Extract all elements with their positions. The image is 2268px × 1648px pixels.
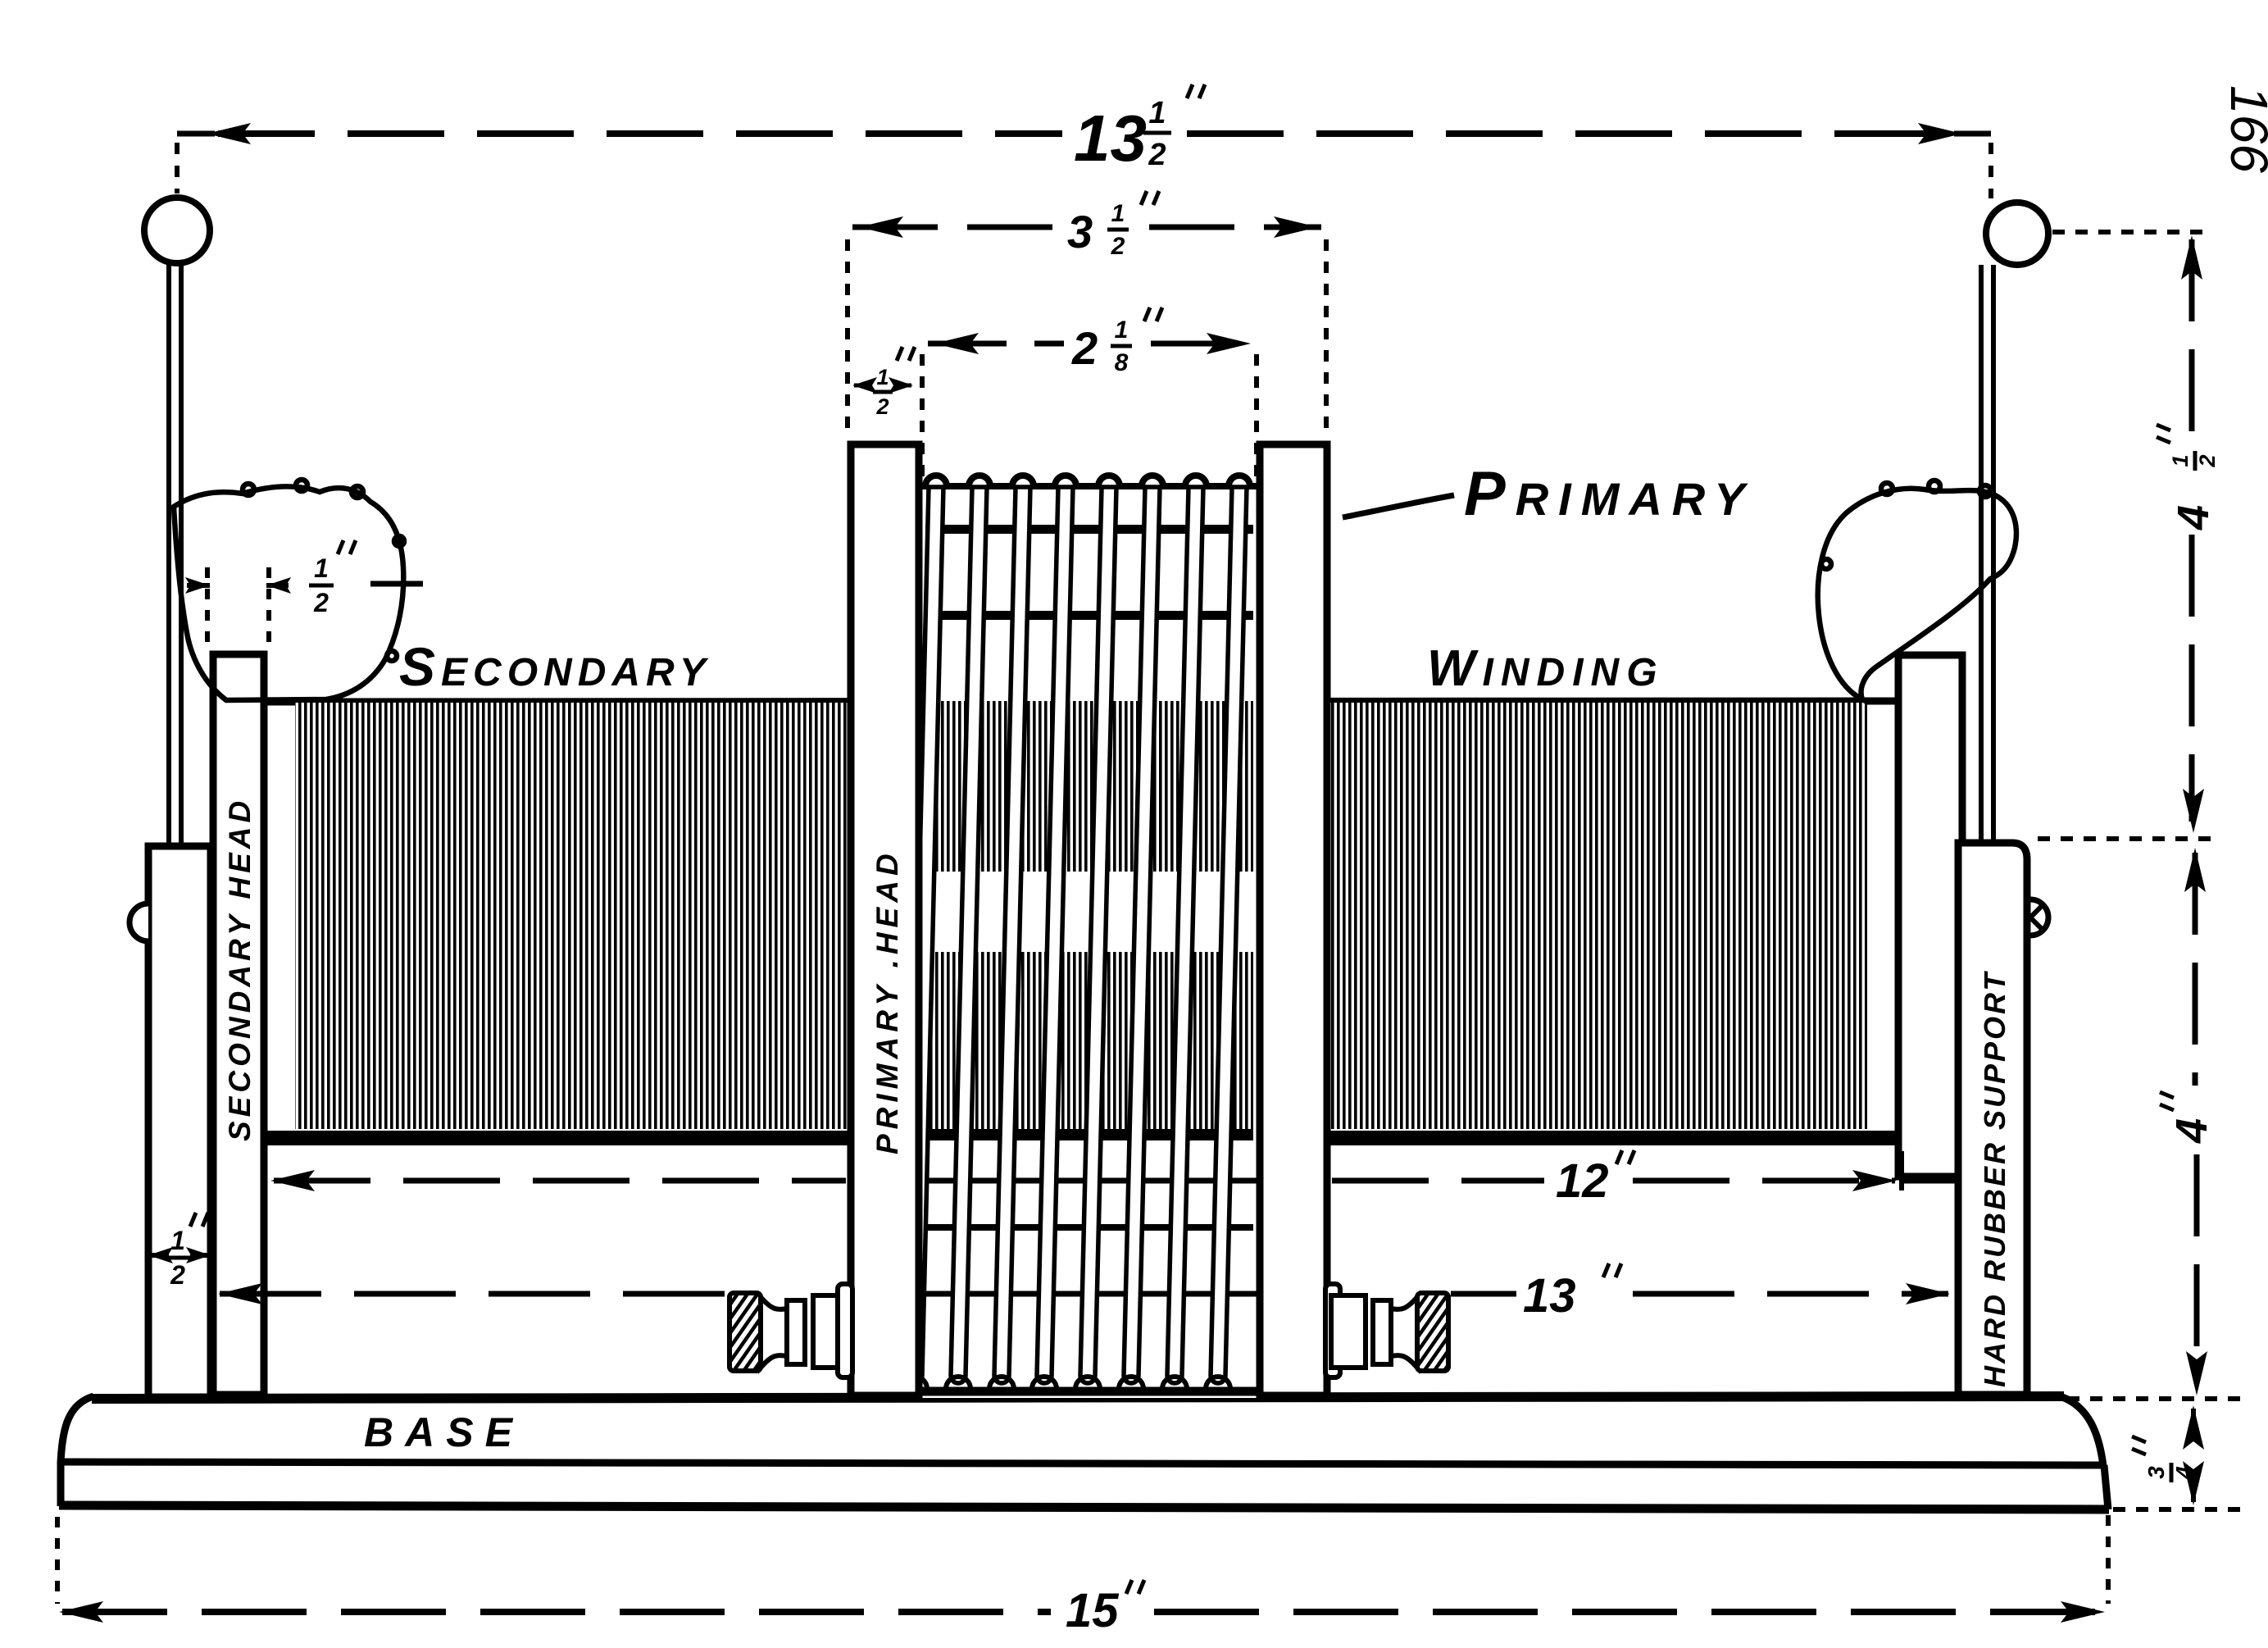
- svg-text:2: 2: [1111, 233, 1125, 260]
- svg-text:3: 3: [2143, 1466, 2169, 1479]
- svg-text:4: 4: [2171, 1466, 2197, 1480]
- svg-text:2: 2: [1071, 322, 1098, 374]
- svg-text:1: 1: [1148, 96, 1166, 130]
- svg-text:2: 2: [875, 394, 889, 419]
- svg-text:12: 12: [1556, 1154, 1609, 1208]
- svg-text:2: 2: [313, 588, 329, 617]
- svg-text:SECONDARY HEAD: SECONDARY HEAD: [223, 797, 257, 1141]
- svg-text:1: 1: [314, 553, 329, 583]
- svg-text:13: 13: [1523, 1269, 1576, 1322]
- svg-text:2: 2: [2195, 454, 2220, 467]
- svg-text:1: 1: [2168, 454, 2193, 467]
- svg-text:4: 4: [2167, 1118, 2216, 1144]
- svg-text:1: 1: [170, 1226, 185, 1255]
- svg-text:BASE: BASE: [364, 1409, 524, 1455]
- svg-text:166: 166: [2220, 85, 2268, 173]
- svg-text:2: 2: [1148, 138, 1166, 172]
- svg-text:1: 1: [876, 365, 889, 389]
- svg-text:1: 1: [1115, 316, 1129, 344]
- svg-text:PRIMARY .HEAD: PRIMARY .HEAD: [870, 849, 904, 1154]
- svg-text:4: 4: [2169, 505, 2218, 530]
- svg-text:13: 13: [1074, 102, 1147, 175]
- svg-text:15: 15: [1066, 1584, 1119, 1637]
- svg-text:1: 1: [1111, 200, 1125, 227]
- svg-text:HARD RUBBER SUPPORT: HARD RUBBER SUPPORT: [1978, 971, 2011, 1387]
- svg-text:2: 2: [170, 1260, 185, 1290]
- svg-text:3: 3: [1067, 206, 1093, 257]
- svg-text:8: 8: [1115, 349, 1129, 376]
